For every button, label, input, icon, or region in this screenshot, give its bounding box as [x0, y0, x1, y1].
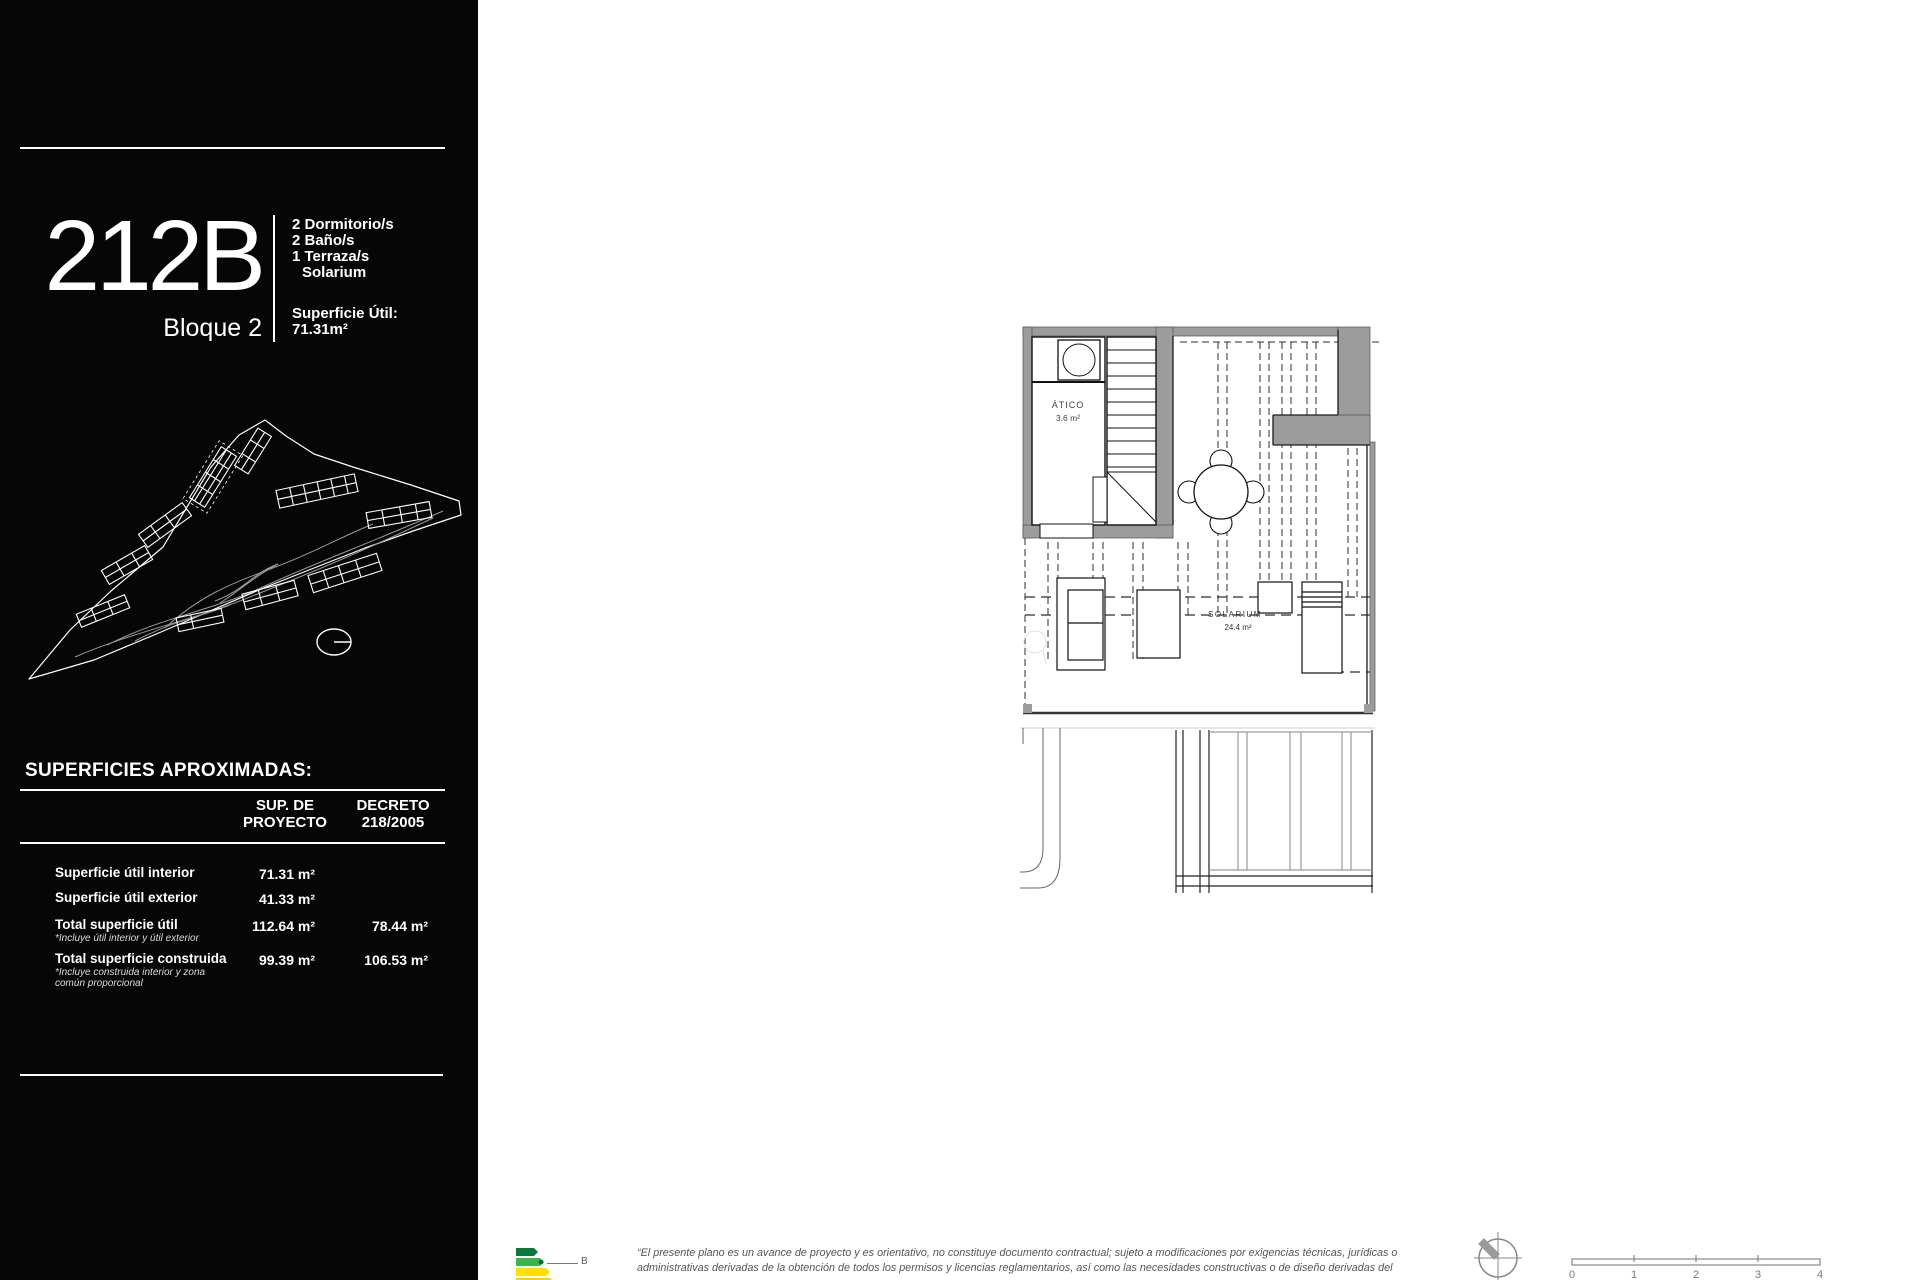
atico-label: ÁTICO: [1052, 400, 1085, 410]
disclaimer: “El presente plano es un avance de proye…: [637, 1246, 1452, 1276]
atico-fixture: [1058, 340, 1100, 380]
feature-item: Solarium: [292, 265, 394, 281]
row-value-proyecto: 41.33 m²: [200, 891, 315, 907]
site-orientation-mark: [317, 629, 351, 655]
sun-lounger: [1068, 590, 1103, 660]
energy-efficiency-icon: [516, 1248, 562, 1280]
scale-tick: 1: [1631, 1269, 1637, 1280]
feature-item: 2 Baño/s: [292, 233, 394, 249]
col-header-line: 218/2005: [338, 814, 448, 831]
table-rule-bottom: [20, 1074, 443, 1076]
atico-door: [1040, 524, 1093, 538]
row-note: *Incluye construida interior y zona comú…: [55, 967, 223, 989]
sidebar-panel: 212B Bloque 2 2 Dormitorio/s 2 Baño/s 1 …: [0, 0, 478, 1280]
row-value-proyecto: 112.64 m²: [200, 918, 315, 934]
unit-features-list: 2 Dormitorio/s 2 Baño/s 1 Terraza/s Sola…: [292, 217, 394, 281]
side-table: [1258, 582, 1292, 613]
energy-rating-line: [547, 1263, 578, 1264]
row-note: *Incluye útil interior y útil exterior: [55, 933, 223, 944]
disclaimer-line: administrativas derivadas de la obtenció…: [637, 1261, 1452, 1276]
superficie-util-label: Superficie Útil:: [292, 306, 398, 322]
table-rule-top: [20, 789, 445, 791]
divider-top: [20, 147, 445, 149]
col-header-decreto: DECRETO 218/2005: [338, 797, 448, 831]
lower-level-outline: [1020, 728, 1375, 893]
scale-bar: 0 1 2 3 4: [1566, 1250, 1826, 1280]
solarium-label: SOLARIUM: [1208, 610, 1262, 619]
scale-tick: 4: [1817, 1269, 1823, 1280]
vertical-divider: [273, 215, 275, 342]
feature-item: 2 Dormitorio/s: [292, 217, 394, 233]
faint-watermark: [1024, 631, 1046, 664]
site-plan-illustration: [15, 405, 470, 695]
scale-tick: 3: [1755, 1269, 1761, 1280]
north-compass-icon: [1472, 1232, 1524, 1280]
col-header-line: SUP. DE: [230, 797, 340, 814]
sun-loungers: [1057, 578, 1342, 673]
scale-tick: 2: [1693, 1269, 1699, 1280]
feature-item: 1 Terraza/s: [292, 249, 394, 265]
sun-lounger: [1137, 590, 1180, 658]
energy-rating-letter: B: [581, 1256, 588, 1267]
row-value-decreto: 106.53 m²: [342, 952, 428, 968]
row-value-decreto: 78.44 m²: [342, 918, 428, 934]
superficie-util: Superficie Útil: 71.31m²: [292, 306, 398, 338]
col-header-line: DECRETO: [338, 797, 448, 814]
col-header-proyecto: SUP. DE PROYECTO: [230, 797, 340, 831]
row-value-proyecto: 99.39 m²: [200, 952, 315, 968]
floor-plan: ÁTICO 3.6 m² SOLARIUM 24.4 m²: [1020, 320, 1380, 900]
row-value-proyecto: 71.31 m²: [200, 866, 315, 882]
unit-code: 212B: [18, 206, 262, 306]
table-rule-header: [20, 842, 445, 844]
disclaimer-line: “El presente plano es un avance de proye…: [637, 1246, 1452, 1261]
solarium-area: 24.4 m²: [1224, 623, 1251, 632]
scale-tick: 0: [1569, 1269, 1575, 1280]
col-header-line: PROYECTO: [230, 814, 340, 831]
atico-area: 3.6 m²: [1056, 413, 1080, 423]
table-title: SUPERFICIES APROXIMADAS:: [25, 760, 312, 782]
solarium-table: [1178, 450, 1264, 534]
block-label: Bloque 2: [18, 314, 262, 343]
sun-lounger: [1302, 582, 1342, 673]
superficie-util-value: 71.31m²: [292, 322, 398, 338]
